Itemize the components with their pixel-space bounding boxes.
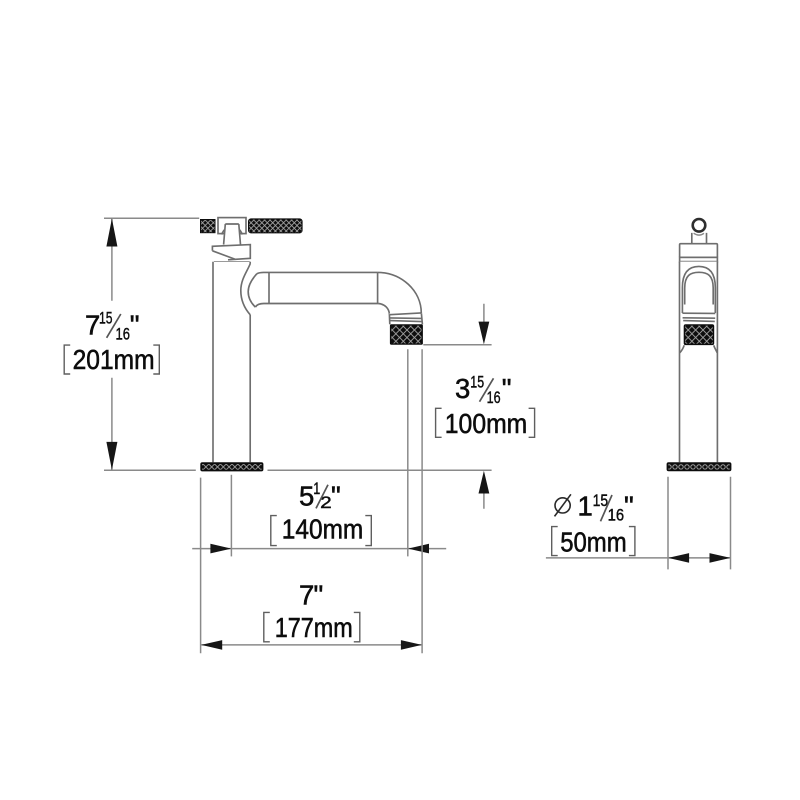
svg-text:50mm: 50mm bbox=[560, 526, 627, 557]
svg-text:3: 3 bbox=[455, 373, 470, 404]
svg-text:1: 1 bbox=[578, 490, 593, 521]
svg-text:16: 16 bbox=[608, 507, 625, 525]
svg-text:15: 15 bbox=[593, 492, 609, 510]
svg-text:15: 15 bbox=[99, 310, 113, 328]
svg-text:15: 15 bbox=[470, 374, 484, 392]
svg-text:140mm: 140mm bbox=[282, 513, 364, 544]
svg-text:": " bbox=[130, 309, 140, 340]
svg-text:": " bbox=[314, 579, 324, 610]
svg-text:201mm: 201mm bbox=[73, 344, 155, 375]
svg-text:5: 5 bbox=[299, 481, 314, 512]
svg-text:1: 1 bbox=[313, 480, 320, 498]
svg-text:": " bbox=[624, 490, 634, 521]
svg-text:177mm: 177mm bbox=[275, 612, 353, 643]
svg-text:16: 16 bbox=[116, 326, 131, 344]
svg-text:100mm: 100mm bbox=[445, 408, 528, 439]
svg-text:": " bbox=[502, 373, 512, 404]
svg-text:7: 7 bbox=[85, 309, 100, 340]
svg-text:": " bbox=[331, 481, 341, 512]
svg-text:7: 7 bbox=[299, 579, 314, 610]
svg-text:16: 16 bbox=[487, 389, 501, 407]
